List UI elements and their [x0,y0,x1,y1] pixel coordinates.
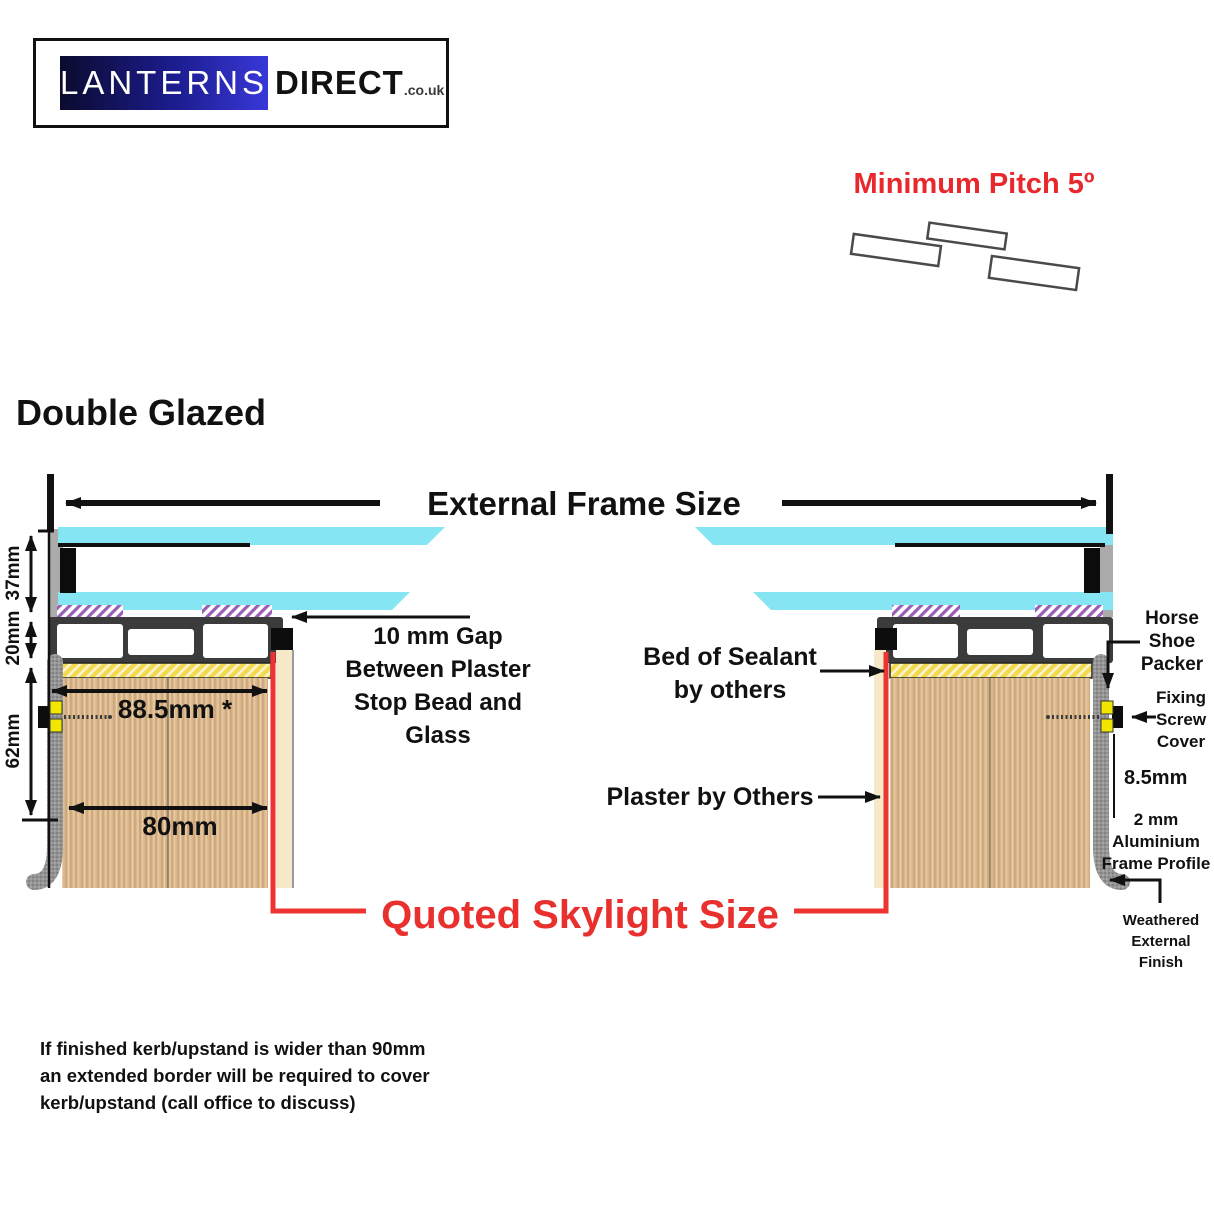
kerb-height-dim: 62mm [3,709,25,773]
weathered-skin-left [34,662,55,882]
aluminium-profile-left [48,617,283,663]
glazing-tape-left [202,605,272,618]
logo-brand-primary: LANTERNS [60,56,268,110]
horse-shoe-packer-label: Horse Shoe Packer [1128,607,1214,676]
sealant-bed-right [890,663,1092,678]
kerb-width-dim: 80mm [110,811,250,842]
fixing-screw-cover-label: Fixing Screw Cover [1144,687,1214,753]
glass-outer-pane-right [695,527,1113,545]
glass-height-dim: 37mm [3,541,25,605]
sealant-annotation: Bed of Sealant by others [632,641,828,707]
glazing-spacer-left [60,548,76,593]
plaster-annotation: Plaster by Others [604,783,816,812]
quoted-skylight-size-label: Quoted Skylight Size [368,893,792,938]
plaster-board-left [276,650,293,888]
glazing-spacer-right [1084,548,1100,593]
aluminium-profile-label: 2 mm Aluminium Frame Profile [1096,809,1214,875]
weathered-finish-label: Weathered External Finish [1108,910,1214,973]
minimum-pitch-diagram [851,223,1079,290]
glazing-tape-right [892,605,960,618]
overall-width-dim: 88.5mm * [95,694,255,725]
glass-outer-pane-left [58,527,445,545]
page-title: Double Glazed [16,392,266,434]
minimum-pitch-label: Minimum Pitch 5º [828,168,1120,201]
skylight-section-diagram-page: LANTERNS DIRECT .co.uk [0,0,1214,1214]
kerb-width-footnote: If finished kerb/upstand is wider than 9… [40,1035,460,1116]
reveal-dim: 8.5mm [1124,767,1204,790]
sealant-bed-left [57,663,271,678]
aluminium-profile-right [877,617,1113,663]
plaster-stop-bead-right [875,628,897,650]
logo-brand-secondary: DIRECT [275,64,404,102]
profile-height-dim: 20mm [3,606,25,670]
lanterns-direct-logo: LANTERNS DIRECT .co.uk [33,38,449,128]
glazing-tape-right [1035,605,1103,618]
glazing-tape-left [57,605,123,618]
external-frame-size-label: External Frame Size [388,485,780,523]
right-frame-section [695,527,1123,888]
logo-domain-suffix: .co.uk [404,82,444,98]
plaster-stop-bead-left [271,628,293,650]
gap-annotation: 10 mm Gap Between Plaster Stop Bead and … [332,620,544,752]
